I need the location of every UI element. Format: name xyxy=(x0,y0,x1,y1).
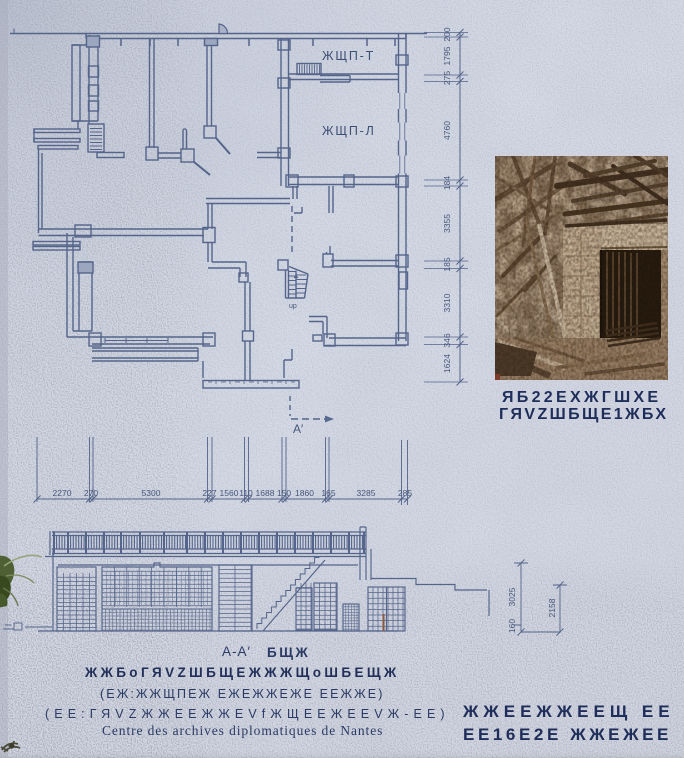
svg-text:A′: A′ xyxy=(293,422,304,436)
svg-text:150: 150 xyxy=(277,488,291,498)
svg-text:(ЕЕ:ГЯVZЖЖЕЕЖЖЕVfЖЩЕЕЖЕЕVЖ-ЕЕ): (ЕЕ:ГЯVZЖЖЕЕЖЖЕVfЖЩЕЕЖЕЕVЖ-ЕЕ) xyxy=(45,707,450,721)
svg-text:3285: 3285 xyxy=(357,488,376,498)
svg-text:5300: 5300 xyxy=(142,488,161,498)
svg-text:2158: 2158 xyxy=(547,598,557,617)
svg-text:1624: 1624 xyxy=(442,354,452,373)
svg-text:3025: 3025 xyxy=(507,587,517,606)
svg-text:up: up xyxy=(289,303,297,310)
svg-text:1688: 1688 xyxy=(256,488,275,498)
svg-text:ЖЩП-Л: ЖЩП-Л xyxy=(322,124,376,138)
svg-text:200: 200 xyxy=(442,27,452,41)
svg-text:A-A′: A-A′ xyxy=(222,644,251,659)
svg-text:346: 346 xyxy=(442,333,452,347)
svg-text:4760: 4760 xyxy=(442,121,452,140)
svg-text:1560: 1560 xyxy=(220,488,239,498)
svg-text:270: 270 xyxy=(84,488,98,498)
svg-text:110: 110 xyxy=(239,488,253,498)
svg-text:ГЯVZШБЩЕ1ЖБХ: ГЯVZШБЩЕ1ЖБХ xyxy=(499,406,669,423)
svg-text:ЖЖБoГЯVZШБЩЕЖЖЖЩoШБЕЩЖ: ЖЖБoГЯVZШБЩЕЖЖЖЩoШБЕЩЖ xyxy=(84,665,400,680)
svg-text:БЩЖ: БЩЖ xyxy=(267,645,310,660)
svg-text:ЖЩП-Т: ЖЩП-Т xyxy=(322,49,375,63)
svg-text:160: 160 xyxy=(507,619,517,633)
svg-text:1860: 1860 xyxy=(295,488,314,498)
svg-text:165: 165 xyxy=(321,488,335,498)
svg-text:ЖЖЕЕЖЖЕЕЩ ЕЕ: ЖЖЕЕЖЖЕЕЩ ЕЕ xyxy=(462,702,675,721)
svg-text:184: 184 xyxy=(442,176,452,190)
svg-text:185: 185 xyxy=(442,257,452,271)
svg-text:227: 227 xyxy=(202,488,216,498)
svg-text:2270: 2270 xyxy=(53,488,72,498)
svg-text:285: 285 xyxy=(398,488,412,498)
svg-text:3355: 3355 xyxy=(442,214,452,233)
svg-text:3310: 3310 xyxy=(442,293,452,312)
svg-text:ЯБ22ЕХЖГШХЕ: ЯБ22ЕХЖГШХЕ xyxy=(502,389,661,406)
svg-text:275: 275 xyxy=(442,71,452,85)
svg-text:(ЕЖ:ЖЖЩПЕЖ ЕЖЕЖЖЕЖЕ ЕЕЖЖЕ): (ЕЖ:ЖЖЩПЕЖ ЕЖЕЖЖЕЖЕ ЕЕЖЖЕ) xyxy=(100,687,385,701)
svg-text:Centre des archives diplomatiq: Centre des archives diplomatiques de Nan… xyxy=(102,723,383,738)
svg-text:ЕЕ16Е2Е ЖЖЕЖЕЕ: ЕЕ16Е2Е ЖЖЕЖЕЕ xyxy=(463,725,672,744)
svg-text:1795: 1795 xyxy=(442,46,452,65)
